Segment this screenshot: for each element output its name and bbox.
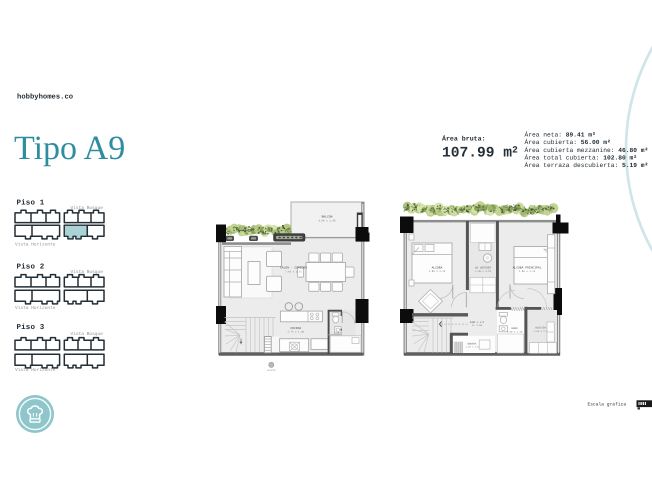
svg-text:BALCON: BALCON	[322, 215, 333, 219]
svg-text:1.60 x 2.10: 1.60 x 2.10	[507, 331, 522, 334]
svg-text:7.05 x 3.75: 7.05 x 3.75	[285, 270, 302, 273]
svg-text:3.80 x 1.35: 3.80 x 1.35	[318, 220, 335, 223]
svg-text:SALON - COMEDOR: SALON - COMEDOR	[280, 266, 307, 270]
svg-text:107.99 m2: 107.99 m2	[442, 145, 518, 162]
svg-text:Área terraza descubierta: 5.19: Área terraza descubierta: 5.19 m²	[525, 161, 649, 169]
svg-text:BAÑO: BAÑO	[511, 327, 517, 331]
svg-text:Área bruta:: Área bruta:	[442, 135, 486, 143]
svg-text:Escala gráfica: Escala gráfica	[588, 401, 627, 407]
svg-text:2.80 x 4.15: 2.80 x 4.15	[429, 270, 446, 273]
svg-text:Área total cubierta: 102.80 m²: Área total cubierta: 102.80 m²	[525, 154, 638, 162]
svg-text:2.75 x 1.30: 2.75 x 1.30	[287, 331, 304, 334]
svg-text:2.80 x 4.15: 2.80 x 4.15	[519, 270, 536, 273]
svg-text:Vista Horizonte: Vista Horizonte	[15, 305, 56, 310]
svg-text:hobbyhomes.co: hobbyhomes.co	[17, 92, 73, 101]
svg-text:1.50 x 2.6: 1.50 x 2.6	[534, 330, 548, 333]
svg-text:ALCOBA: ALCOBA	[432, 266, 443, 270]
svg-text:Vista Horizonte: Vista Horizonte	[15, 368, 56, 373]
svg-text:Piso 2: Piso 2	[17, 263, 45, 272]
svg-text:1.30 x 4.70: 1.30 x 4.70	[475, 270, 491, 273]
svg-text:1.10 x 2.0: 1.10 x 2.0	[465, 346, 478, 349]
svg-text:BODEGA: BODEGA	[468, 342, 477, 345]
svg-text:COCINA: COCINA	[290, 327, 301, 331]
svg-text:ACCESO: ACCESO	[267, 369, 275, 372]
svg-text:Vista Bosque: Vista Bosque	[71, 332, 103, 337]
svg-text:Piso 3: Piso 3	[17, 323, 45, 332]
svg-text:H: 2.60: H: 2.60	[472, 324, 482, 327]
svg-text:Tipo A9: Tipo A9	[14, 130, 125, 167]
svg-text:VESTIER: VESTIER	[535, 327, 546, 330]
svg-text:Piso 1: Piso 1	[17, 199, 45, 208]
svg-text:WC VESTIER: WC VESTIER	[475, 266, 491, 269]
svg-text:Área neta: 89.41 m²: Área neta: 89.41 m²	[525, 131, 596, 139]
svg-text:SUBE 2 1/2: SUBE 2 1/2	[470, 321, 484, 324]
svg-text:Vista Horizonte: Vista Horizonte	[15, 242, 56, 247]
svg-text:Área cubierta mezzanine: 46.80: Área cubierta mezzanine: 46.80 m²	[525, 146, 649, 154]
svg-text:ALCOBA PRINCIPAL: ALCOBA PRINCIPAL	[513, 266, 542, 270]
svg-text:Área cubierta: 56.00 m²: Área cubierta: 56.00 m²	[525, 138, 611, 146]
